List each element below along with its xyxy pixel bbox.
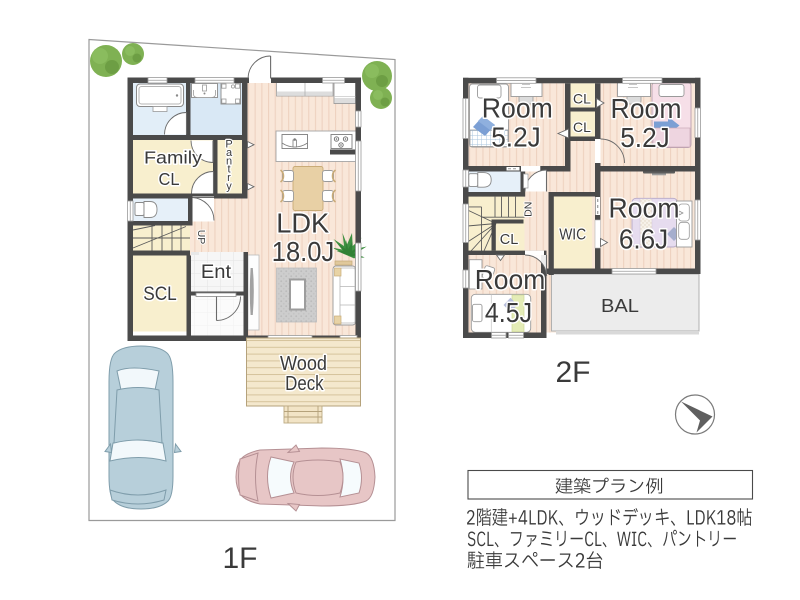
svg-text:18.0J: 18.0J	[272, 236, 335, 267]
svg-text:1F: 1F	[222, 542, 257, 575]
svg-text:CL: CL	[159, 169, 180, 189]
svg-text:SCL: SCL	[143, 284, 177, 305]
svg-text:y: y	[226, 181, 232, 193]
svg-text:Wood: Wood	[280, 353, 327, 375]
svg-text:BAL: BAL	[601, 296, 639, 316]
svg-text:Room: Room	[475, 264, 546, 295]
svg-text:Room: Room	[611, 93, 682, 124]
svg-text:Family: Family	[144, 148, 202, 168]
svg-text:DN: DN	[523, 202, 535, 217]
svg-text:4.5J: 4.5J	[485, 297, 532, 328]
svg-text:5.2J: 5.2J	[620, 122, 670, 153]
svg-text:UP: UP	[195, 230, 207, 245]
svg-text:CL: CL	[573, 91, 591, 107]
svg-text:2F: 2F	[555, 356, 590, 389]
svg-text:LDK: LDK	[276, 208, 329, 239]
svg-text:Deck: Deck	[285, 373, 324, 395]
svg-text:6.6J: 6.6J	[619, 224, 668, 255]
svg-text:Room: Room	[609, 193, 680, 224]
svg-text:CL: CL	[573, 119, 591, 135]
svg-text:5.2J: 5.2J	[491, 122, 541, 153]
svg-text:CL: CL	[500, 232, 519, 248]
svg-text:WIC: WIC	[559, 227, 586, 244]
svg-text:Ent: Ent	[201, 262, 232, 283]
svg-text:Room: Room	[482, 93, 553, 124]
